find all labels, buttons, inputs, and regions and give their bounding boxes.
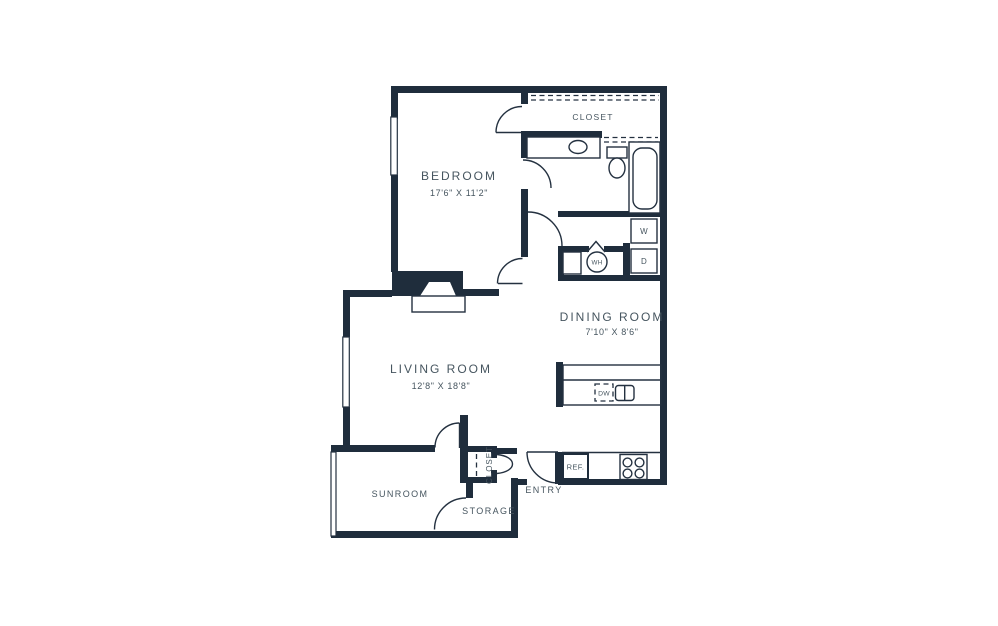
washer-label: W	[640, 227, 648, 236]
wall-bedroom-bottom	[460, 289, 499, 296]
hall-door	[528, 212, 562, 246]
bathroom-door	[523, 160, 551, 188]
water-heater-closet-door	[587, 242, 605, 253]
wall-bedroom-west-upper	[391, 86, 398, 119]
bedroom-closet-door	[496, 107, 522, 133]
dining-room-label: DINING ROOM	[560, 310, 665, 324]
bedroom-label: BEDROOM	[421, 169, 497, 183]
wall-bedroom-west-lower	[391, 175, 398, 272]
wall-top	[391, 86, 667, 93]
wall-right	[660, 86, 667, 485]
closet-label: CLOSET	[572, 112, 613, 122]
wall-living-west-upper	[343, 290, 350, 337]
fireplace-hearth	[412, 296, 465, 312]
toilet	[607, 147, 627, 178]
sunroom-door	[435, 423, 460, 448]
fireplace	[392, 271, 465, 312]
sunroom-window	[331, 452, 336, 536]
bedroom-window	[391, 117, 398, 175]
entry-door	[527, 452, 558, 483]
storage-label: STORAGE	[462, 506, 516, 516]
wall-storage-west	[466, 483, 473, 498]
floor-plan-page: BEDROOM 17'6" X 11'2" CLOSET DINING ROOM…	[0, 0, 998, 626]
living-room-label: LIVING ROOM	[390, 362, 492, 376]
vanity-sink	[527, 137, 600, 158]
stove	[620, 455, 647, 480]
floor-plan: BEDROOM 17'6" X 11'2" CLOSET DINING ROOM…	[0, 0, 998, 626]
bathroom-fixtures	[527, 137, 660, 213]
bedroom-door	[498, 259, 523, 284]
windows	[331, 117, 397, 536]
entry-closet-label: CLOSET	[485, 446, 494, 484]
wall-closet-to-entry	[497, 448, 517, 454]
wall-wd-bottom	[558, 275, 667, 281]
dishwasher-label: DW	[598, 391, 610, 398]
peninsula-counter	[563, 365, 661, 405]
dining-room-dimensions: 7'10" X 8'6"	[585, 327, 638, 337]
wall-sunroom-top	[331, 445, 435, 452]
entry-closet-door	[497, 455, 513, 474]
water-heater-label: WH	[592, 260, 603, 267]
living-room-window	[343, 337, 350, 407]
wall-living-top	[343, 290, 392, 297]
refrigerator-label: REF.	[567, 463, 585, 472]
wall-bedroom-east-top	[521, 86, 528, 104]
dryer-label: D	[641, 257, 647, 266]
entry-label: ENTRY	[525, 485, 562, 495]
bathtub	[629, 142, 660, 213]
wall-entry-kitchen-stub	[555, 452, 562, 484]
wall-bottom-left	[331, 531, 518, 538]
bedroom-dimensions: 17'6" X 11'2"	[430, 188, 488, 198]
kitchen-sink	[616, 386, 635, 401]
wall-bedroom-east-low	[521, 189, 528, 257]
sunroom-label: SUNROOM	[372, 489, 429, 499]
wall-peninsula-stub	[556, 362, 563, 407]
wall-whcloset-top-left	[558, 246, 589, 252]
utility-box	[563, 252, 581, 274]
living-room-dimensions: 12'8" X 18'8"	[412, 381, 471, 391]
